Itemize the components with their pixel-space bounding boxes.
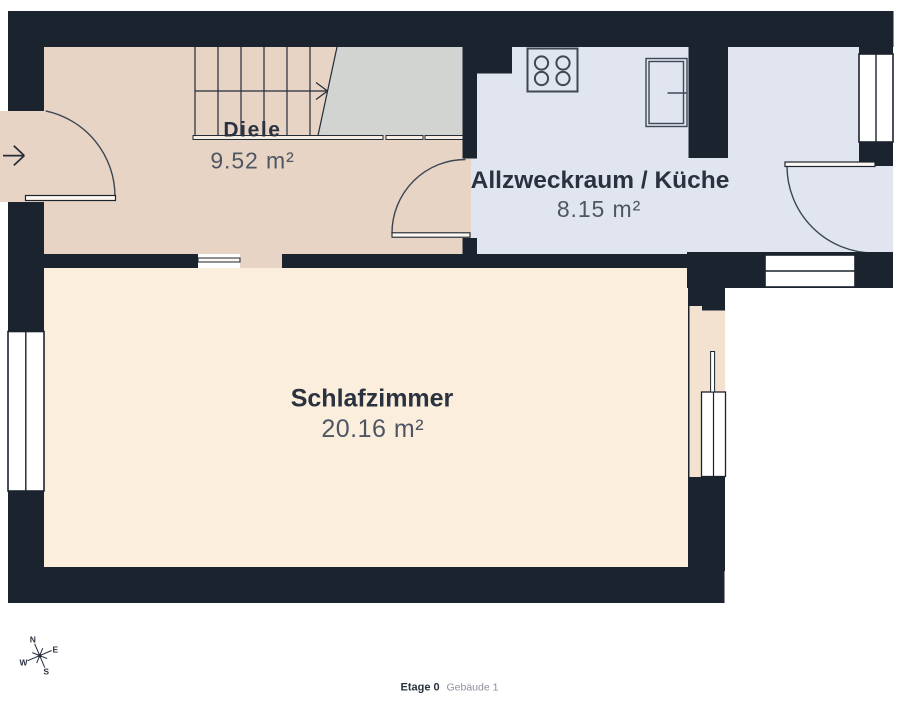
svg-text:E: E: [52, 645, 58, 655]
svg-text:N: N: [30, 635, 36, 645]
svg-text:Etage 0: Etage 0: [401, 682, 440, 694]
svg-text:S: S: [43, 666, 49, 676]
svg-text:20.16 m²: 20.16 m²: [321, 415, 424, 443]
svg-text:W: W: [19, 658, 28, 668]
svg-text:Diele: Diele: [223, 119, 281, 142]
svg-text:Gebäude 1: Gebäude 1: [447, 682, 499, 694]
svg-text:8.15 m²: 8.15 m²: [557, 196, 641, 222]
svg-text:Schlafzimmer: Schlafzimmer: [291, 385, 454, 413]
svg-text:9.52 m²: 9.52 m²: [210, 147, 294, 173]
svg-text:Allzweckraum / Küche: Allzweckraum / Küche: [471, 167, 730, 194]
